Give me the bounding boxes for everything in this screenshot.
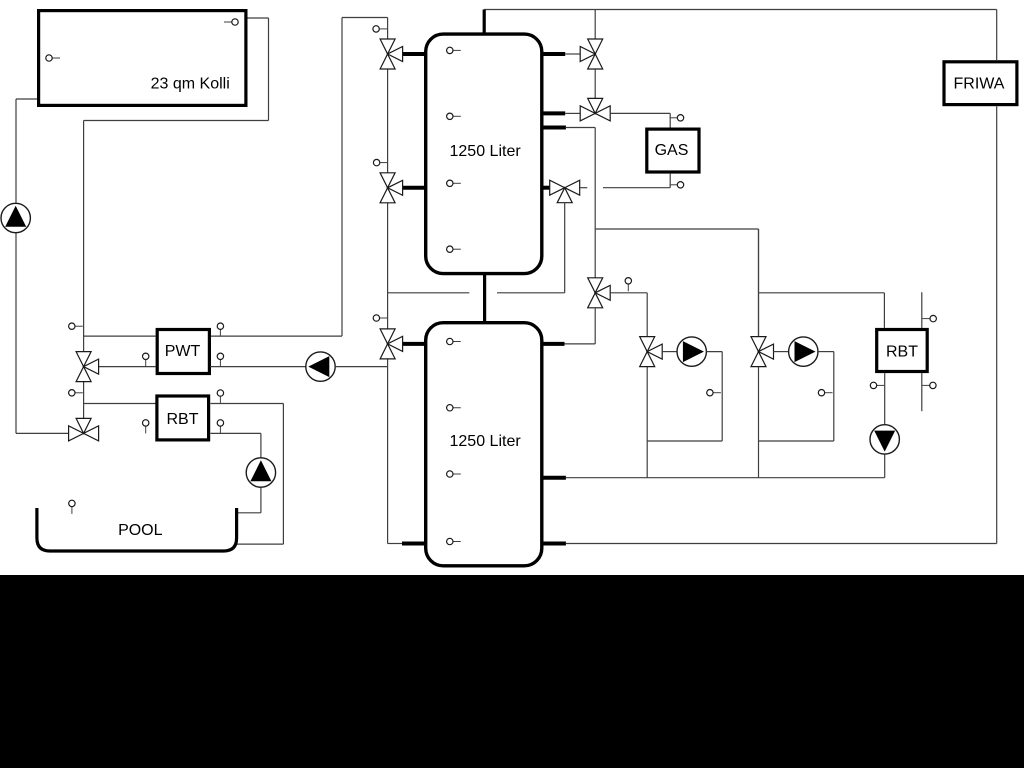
svg-text:PWT: PWT	[165, 343, 201, 360]
svg-text:1250 Liter: 1250 Liter	[450, 143, 522, 160]
svg-text:FRIWA: FRIWA	[954, 76, 1005, 93]
svg-text:1250 Liter: 1250 Liter	[450, 433, 522, 450]
svg-text:RBT: RBT	[167, 411, 199, 428]
svg-text:POOL: POOL	[118, 522, 163, 539]
svg-text:RBT: RBT	[886, 343, 918, 360]
svg-text:GAS: GAS	[655, 142, 689, 159]
svg-text:23 qm Kolli: 23 qm Kolli	[151, 76, 230, 93]
